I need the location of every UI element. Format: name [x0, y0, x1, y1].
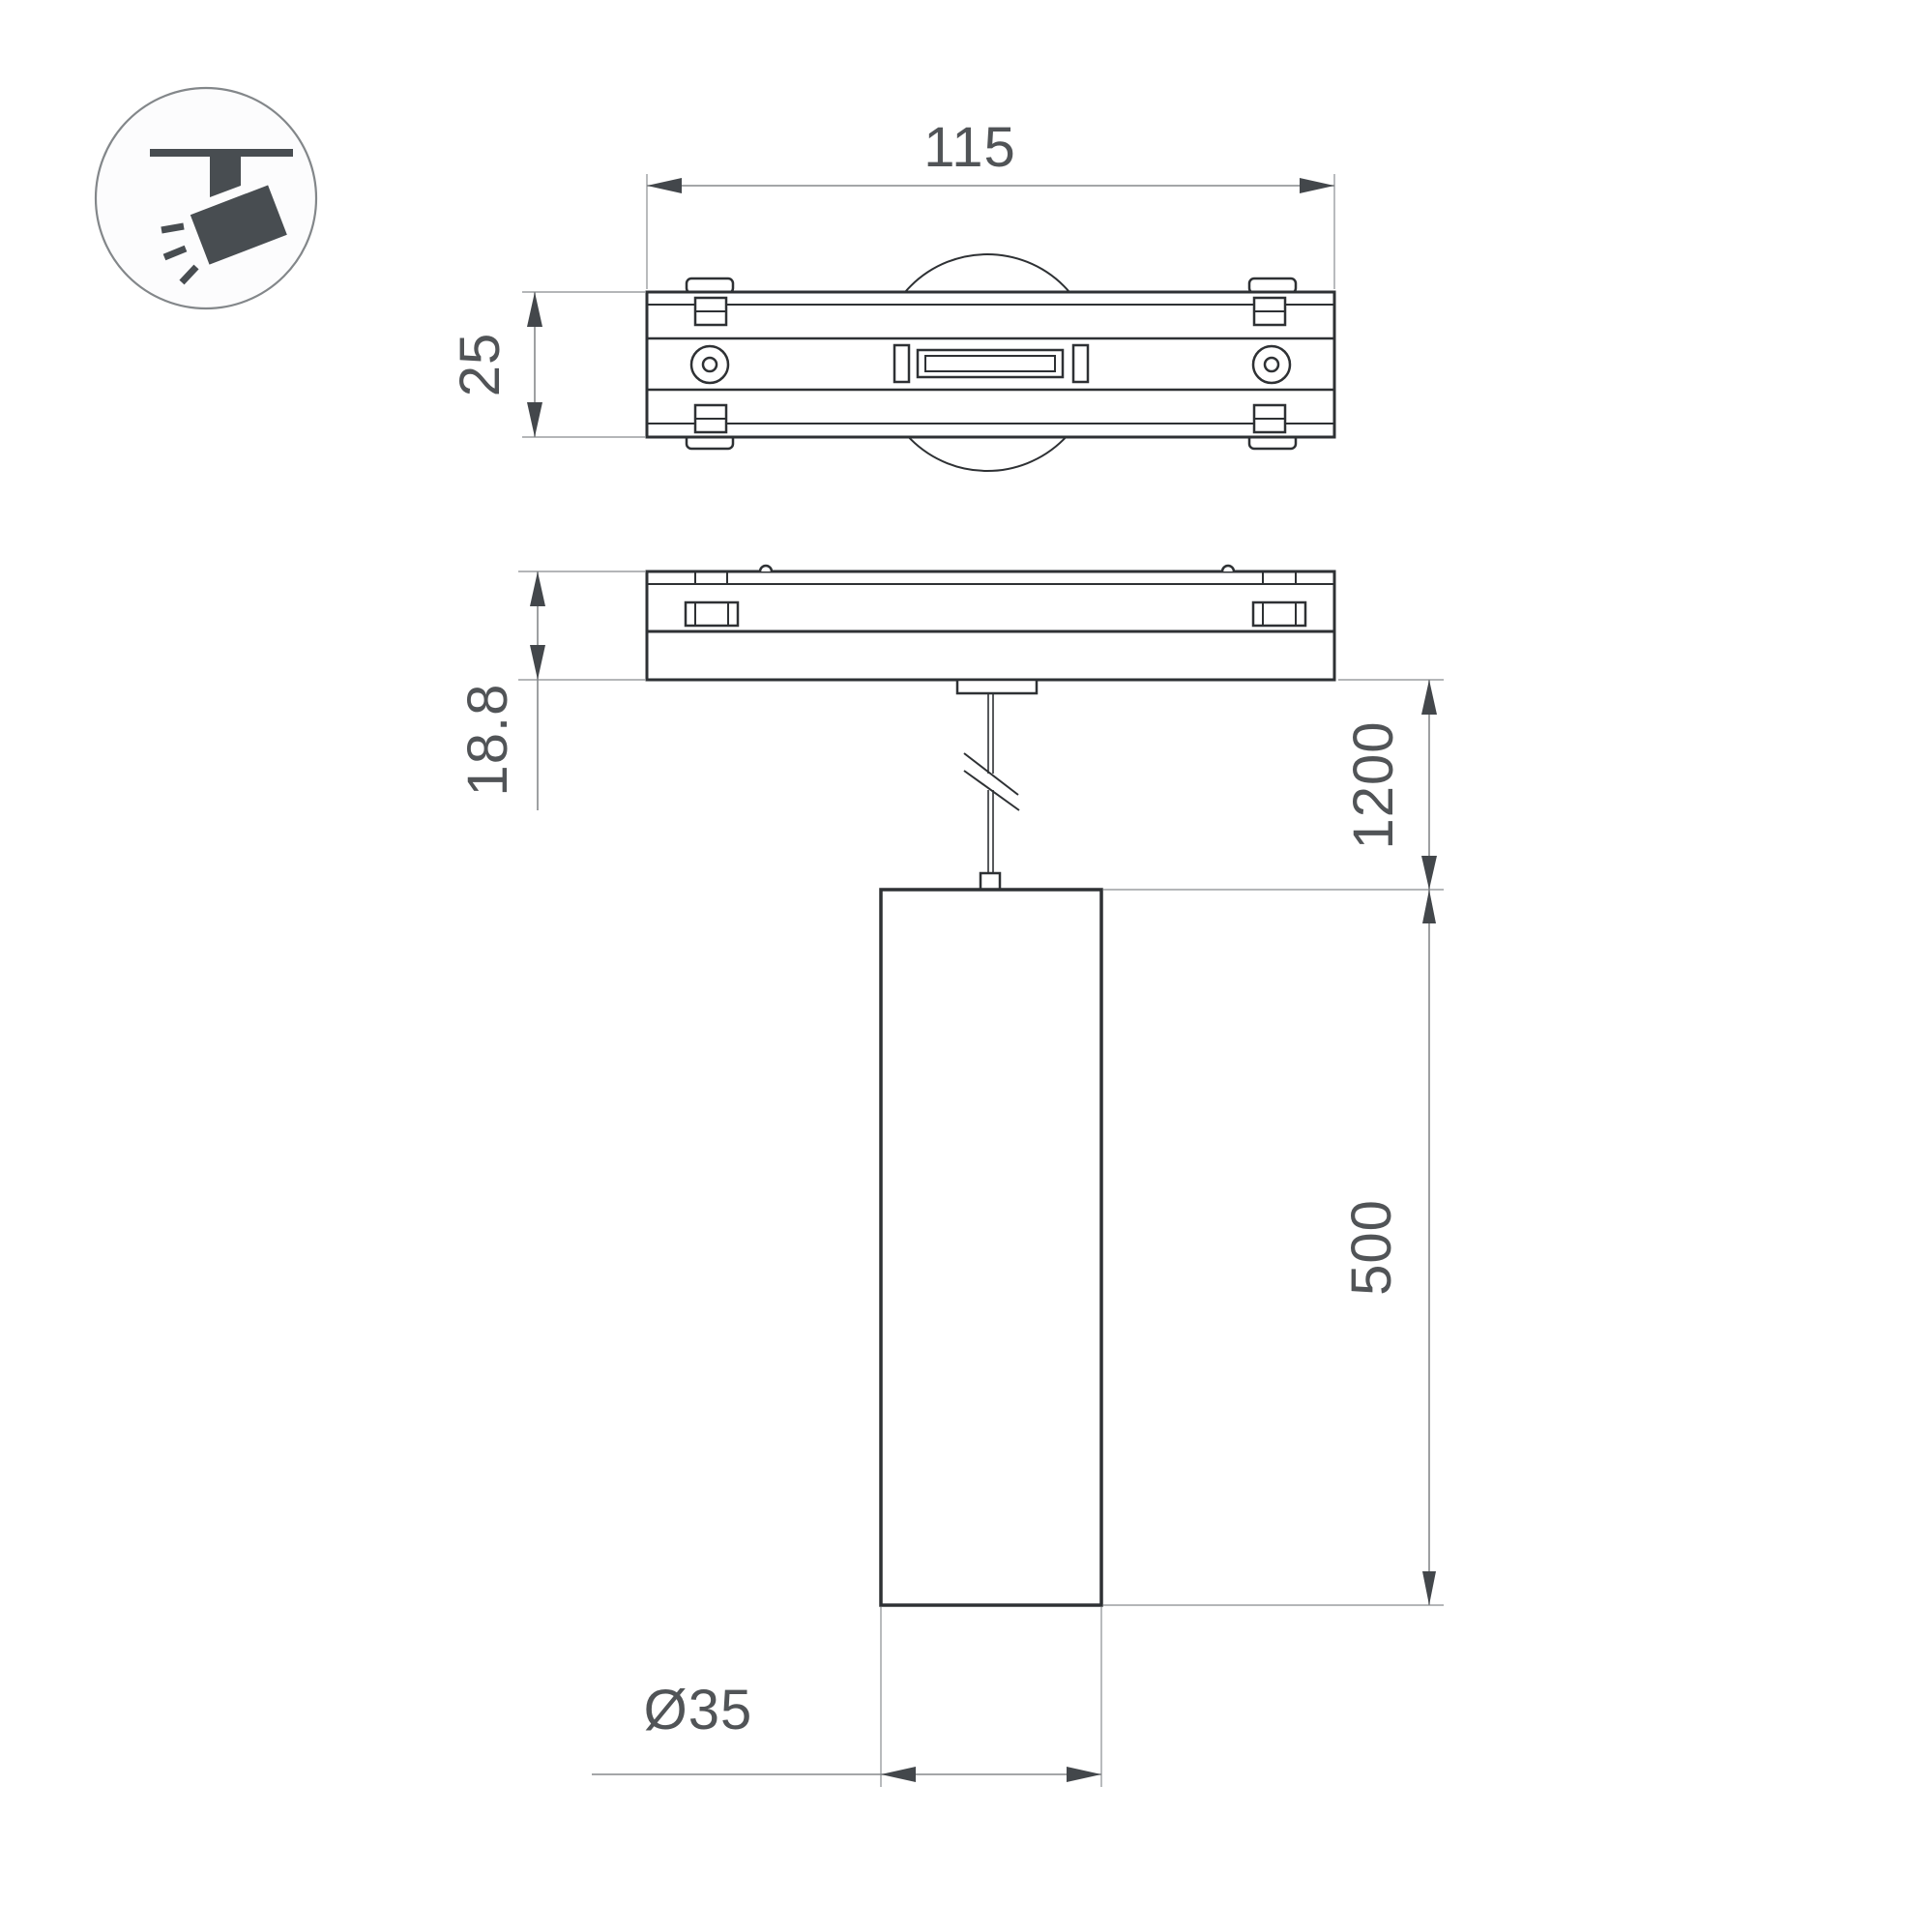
arrowhead-left — [647, 178, 682, 193]
suspension-plate — [957, 680, 1037, 693]
arrowhead-down — [530, 645, 545, 680]
wire-break-symbol — [964, 753, 1019, 810]
technical-drawing: 115 25 — [0, 0, 1932, 1932]
arrowhead-up — [530, 571, 545, 606]
arrowhead-down — [527, 402, 542, 437]
arrowhead-right — [1300, 178, 1334, 193]
clip-box-left — [686, 602, 738, 626]
dimension-track-width: 25 — [449, 292, 645, 437]
dimension-suspension-length: 1200 — [1103, 680, 1444, 890]
track-adapter-side-view — [647, 566, 1334, 693]
dimension-track-length: 115 — [647, 116, 1334, 289]
dim-adapter-height-label: 18.8 — [456, 684, 519, 797]
icon-circle — [96, 88, 316, 308]
arrowhead-right — [1067, 1767, 1101, 1782]
track-adapter-top-view — [647, 254, 1334, 471]
dim-suspension-length-label: 1200 — [1342, 720, 1405, 849]
arrowhead-up — [527, 292, 542, 327]
contact-bump-left — [760, 566, 772, 571]
arrowhead-down — [1422, 1571, 1436, 1605]
dim-track-length-label: 115 — [923, 116, 1015, 179]
dim-body-diameter-label: Ø35 — [644, 1679, 753, 1742]
dim-track-width-label: 25 — [449, 333, 512, 397]
arrowhead-down — [1421, 856, 1437, 890]
arrowhead-up — [1421, 680, 1437, 715]
dimension-body-diameter: Ø35 — [592, 1607, 1101, 1787]
arrowhead-left — [881, 1767, 916, 1782]
pendant-cylinder — [881, 890, 1101, 1605]
clip-box-right — [1253, 602, 1305, 626]
dimension-adapter-height: 18.8 — [456, 571, 645, 810]
adapter-body-side-view — [647, 571, 1334, 680]
dim-body-height-label: 500 — [1340, 1199, 1403, 1296]
electrical-connector — [894, 345, 1088, 382]
arrowhead-up — [1422, 890, 1436, 923]
dimension-body-height: 500 — [1103, 890, 1444, 1605]
track-spotlight-icon — [96, 88, 316, 308]
suspension-wire — [964, 693, 1019, 890]
contact-bump-right — [1222, 566, 1234, 571]
wire-gripper — [981, 873, 1000, 890]
